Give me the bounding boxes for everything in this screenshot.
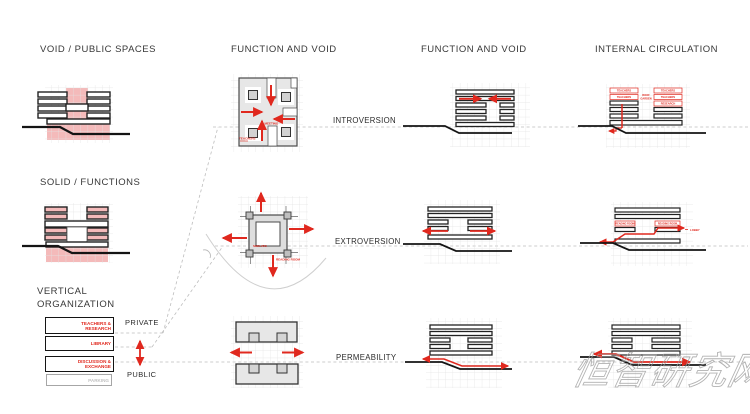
small-arc-tick [203, 250, 210, 258]
floor-label: TEACHERS [661, 89, 676, 93]
section-permeability-diagram [405, 318, 512, 388]
core-square [249, 333, 259, 342]
row-label-extroversion: EXTROVERSION [335, 237, 401, 246]
roof-garden-label-1: ROOF [642, 93, 650, 97]
core-square [277, 364, 287, 373]
level-label: TEACHERS & RESEARCH [69, 321, 111, 331]
core-square [282, 128, 291, 137]
roof-garden-label-2: GARDEN [640, 97, 651, 101]
level-label: DISCUSSION & EXCHANGE [69, 359, 111, 369]
extroversion-plan-diagram: SHELVES READING ROOM [203, 193, 326, 289]
floor-label: RESEARCH [661, 102, 676, 106]
floor-label: READING ROOM [658, 223, 677, 226]
core-square [246, 250, 253, 257]
guide-diagonal-library [152, 246, 223, 347]
plan-label-meeting: MEETING [265, 122, 279, 126]
floor-label: TEACHERS [617, 89, 632, 93]
guide-diagonal-private [163, 127, 218, 333]
row-label-introversion: INTROVERSION [333, 116, 396, 125]
section-introversion-diagram [403, 83, 530, 147]
architecture-diagram-sheet: TEACHERS MEETING [0, 0, 750, 414]
level-box-teachers-research: TEACHERS & RESEARCH [45, 317, 114, 334]
circulation-top-diagram: TEACHERS TEACHERS TEACHERS TEACHERS RESE… [578, 84, 706, 148]
level-box-discussion-exchange: DISCUSSION & EXCHANGE [45, 356, 114, 372]
row-label-permeability: PERMEABILITY [336, 353, 396, 362]
core-square [284, 212, 291, 219]
solid-functions-section-diagram [22, 203, 130, 263]
title-void-public-spaces: VOID / PUBLIC SPACES [40, 44, 156, 55]
title-vertical: VERTICAL [37, 286, 87, 297]
public-label: PUBLIC [127, 370, 157, 379]
level-box-parking: PARKING [46, 374, 112, 386]
level-label: LIBRARY [69, 341, 111, 346]
core-square [284, 250, 291, 257]
title-function-and-void-2: FUNCTION AND VOID [421, 44, 527, 55]
floor-label: TEACHERS [617, 95, 632, 99]
plan-label-shelves: SHELVES [253, 244, 267, 248]
central-void [67, 227, 87, 242]
watermark-text: 恒智研究网 [568, 350, 750, 393]
title-function-and-void-1: FUNCTION AND VOID [231, 44, 337, 55]
plan-label-teachers: TEACHERS [239, 137, 256, 141]
level-box-library: LIBRARY [45, 336, 114, 351]
floor-label: READING ROOM [615, 223, 634, 226]
title-organization: ORGANIZATION [37, 299, 115, 310]
floor-label: TEACHERS [661, 95, 676, 99]
title-solid-functions: SOLID / FUNCTIONS [40, 177, 140, 188]
title-internal-circulation: INTERNAL CIRCULATION [595, 44, 718, 55]
void-public-section-diagram [22, 85, 130, 143]
level-label: PARKING [67, 378, 109, 383]
circulation-middle-diagram: READING ROOM READING ROOM LOBBY [580, 202, 706, 266]
lobby-label: LOBBY [690, 228, 700, 232]
core-square [282, 93, 291, 102]
core-square [277, 333, 287, 342]
section-extroversion-diagram [403, 200, 512, 264]
core-square [249, 364, 259, 373]
diagram-graphics: TEACHERS MEETING [0, 0, 750, 414]
core-square [249, 91, 258, 100]
permeability-plan-diagram [231, 316, 303, 388]
core-square [246, 212, 253, 219]
plan-label-reading-room: READING ROOM [276, 258, 301, 262]
introversion-plan-diagram: TEACHERS MEETING [231, 74, 303, 152]
private-label: PRIVATE [125, 318, 159, 327]
